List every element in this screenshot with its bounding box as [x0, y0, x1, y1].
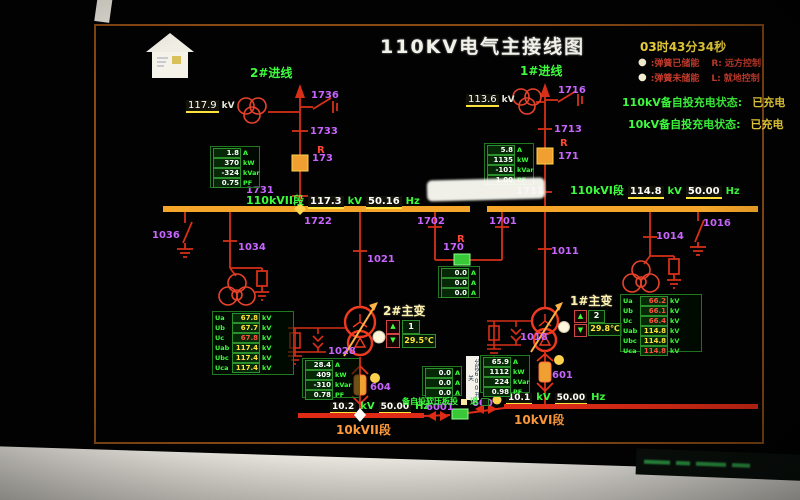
meas-value: 65.9 [483, 357, 511, 367]
meas-unit: kV [262, 324, 271, 332]
meas-label: Ua [215, 314, 230, 322]
charge-value: 已充电 [752, 94, 785, 110]
601-indicator-lamp [554, 355, 564, 365]
bus-name: 110kVI段 [570, 182, 624, 198]
meas-value: 370 [213, 158, 241, 168]
unit: kV [536, 392, 550, 403]
meas-value: 117.4 [232, 363, 260, 373]
meas-unit: A [335, 361, 340, 369]
line1-remote-flag: R [560, 138, 568, 149]
meas-unit: A [471, 289, 476, 297]
tag-1736: 1736 [311, 90, 339, 101]
soft-strap-row: 备自投软压板投 退 [402, 396, 489, 407]
bus-kv: 114.8 [628, 186, 664, 199]
unit: kV [348, 196, 362, 207]
meas-unit: kV [670, 347, 679, 355]
tag-1036: 1036 [152, 230, 180, 241]
clock: 03时43分34秒 [640, 38, 726, 55]
meas-label: Uab [215, 344, 230, 352]
camera-glare [427, 177, 546, 201]
t2-tap-lower-button[interactable]: ▼ [386, 334, 400, 348]
tag-1702: 1702 [417, 216, 445, 227]
line1-voltage: 113.6 kV [466, 94, 515, 107]
t2-tap-position[interactable]: 1 [402, 320, 420, 334]
meas-row: 0.0A [441, 288, 477, 298]
meas-unit: kW [513, 368, 525, 376]
meas-unit: kW [243, 159, 255, 167]
meas-value: 114.8 [640, 326, 668, 336]
t2-spring-indicator-lamp [373, 331, 385, 343]
unit: ℃ [424, 336, 434, 345]
meas-unit: kV [262, 344, 271, 352]
charge-label: 10kV备自投充电状态: [628, 116, 741, 132]
meas-label: Uab [623, 327, 638, 335]
bus-freq: 50.00 [686, 186, 722, 199]
bus-freq: 50.00 [555, 393, 587, 404]
meas-value: 0.0 [441, 278, 469, 288]
line2-pt-icon [238, 98, 266, 123]
bus-kv: 10.2 [330, 402, 356, 413]
meas-unit: kV [670, 307, 679, 315]
meas-value: 5.8 [487, 145, 515, 155]
meas-row: 0.78PF [305, 390, 357, 400]
unit: kV [360, 401, 374, 412]
line2-remote-flag: R [317, 145, 325, 156]
meas-unit: A [455, 379, 460, 387]
meas-unit: kVar [335, 381, 352, 389]
t1-lv-meas-box: 65.9A 1112kW 224kVar 0.98PF [480, 355, 530, 393]
meas-row: -310kVar [305, 380, 357, 390]
meas-label: Ubc [215, 354, 230, 362]
t1-oil-temp: 29.8℃ [588, 323, 622, 336]
soft-strap-off-label: 退 [470, 396, 478, 407]
meas-unit: kVar [243, 169, 260, 177]
meas-unit: kV [670, 317, 679, 325]
page-title: 110KV电气主接线图 [380, 32, 585, 59]
meas-row: -101kVar [487, 165, 531, 175]
line1-voltage-value: 113.6 [466, 94, 499, 107]
meas-row: Uca114.8kV [623, 346, 699, 356]
meas-unit: kW [335, 371, 347, 379]
meas-row: 0.0A [425, 368, 459, 378]
tag-1014: 1014 [656, 231, 684, 242]
breaker-171-icon[interactable] [537, 148, 553, 164]
meas-label: Ub [623, 307, 638, 315]
t1-tap-raise-button[interactable]: ▲ [574, 310, 587, 323]
meas-unit: kV [670, 327, 679, 335]
scada-screen: 110KV电气主接线图 03时43分34秒 ● :弹簧已储能 R: 远方控制 ●… [0, 0, 800, 500]
meas-value: 0.0 [441, 268, 469, 278]
meas-row: Ubc114.8kV [623, 336, 699, 346]
line2-voltage: 117.9 kV [186, 100, 235, 113]
charge-status-10kv: 10kV备自投充电状态: 已充电 [628, 116, 784, 132]
unit: Hz [406, 196, 420, 207]
meas-row: 1.8A [213, 148, 257, 158]
bus2-pt-icon [219, 274, 255, 305]
bus1-pt-icon [623, 261, 659, 292]
breaker-170-icon[interactable] [454, 254, 470, 265]
charge-status-110kv: 110kV备自投充电状态: 已充电 [622, 94, 785, 110]
meas-value: 1135 [487, 155, 515, 165]
t2-temp-value: 29.5 [404, 336, 424, 345]
meas-unit: kV [670, 297, 679, 305]
breaker-600-icon[interactable] [452, 409, 468, 419]
charge-value: 已充电 [751, 116, 784, 132]
bus1-pt-meas-box: Ua66.2kV Ub66.1kV Uc66.4kV Uab114.8kV Ub… [620, 294, 702, 352]
line2-arrow-icon [295, 84, 305, 98]
unit: Hz [591, 392, 605, 403]
meas-value: 0.75 [213, 178, 241, 188]
meas-unit: kV [262, 354, 271, 362]
meas-row: Uc66.4kV [623, 316, 699, 326]
meas-row: Uc67.8kV [215, 333, 291, 343]
tag-601: 601 [552, 370, 573, 381]
meas-row: Ub66.1kV [623, 306, 699, 316]
meas-value: 67.7 [232, 323, 260, 333]
meas-value: 117.4 [232, 343, 260, 353]
meas-unit: kV [670, 337, 679, 345]
meas-value: 117.4 [232, 353, 260, 363]
meas-value: 66.1 [640, 306, 668, 316]
meas-row: 0.0A [441, 278, 477, 288]
meas-unit: A [513, 358, 518, 366]
meas-value: 1112 [483, 367, 511, 377]
meas-row: 0.75PF [213, 178, 257, 188]
meas-row: Ua67.8kV [215, 313, 291, 323]
tie110-remote-flag: R [457, 234, 465, 245]
line1-name: 1#进线 [520, 62, 562, 79]
tag-1034: 1034 [238, 242, 266, 253]
soft-strap-on-checkbox[interactable] [461, 399, 467, 405]
meas-value: 1.8 [213, 148, 241, 158]
meas-unit: PF [335, 391, 344, 399]
meas-label: Uca [215, 364, 230, 372]
meas-value: 66.2 [640, 296, 668, 306]
tag-1701: 1701 [489, 216, 517, 227]
tag-604: 604 [370, 382, 391, 393]
meas-unit: A [471, 279, 476, 287]
meas-row: Uab114.8kV [623, 326, 699, 336]
meas-row: 224kVar [483, 377, 527, 387]
unit: kV [502, 95, 515, 105]
meas-label: Uc [215, 334, 230, 342]
legend-remote: R: 远方控制 [711, 56, 761, 69]
meas-label: Uc [623, 317, 638, 325]
meas-value: -310 [305, 380, 333, 390]
tag-1021: 1021 [367, 254, 395, 265]
meas-row: -324kVar [213, 168, 257, 178]
meas-row: 1135kW [487, 155, 531, 165]
tag-1018: 1018 [520, 332, 548, 343]
home-icon[interactable] [146, 33, 194, 78]
t2-tap-raise-button[interactable]: ▲ [386, 320, 400, 334]
t1-temp-value: 29.8 [590, 324, 610, 333]
t2-oil-temp: 29.5℃ [402, 334, 436, 348]
meas-unit: kV [262, 364, 271, 372]
busbar-10kv-i[interactable] [504, 404, 758, 409]
meas-value: 0.0 [425, 368, 453, 378]
meas-unit: kV [262, 314, 271, 322]
tag-1733: 1733 [310, 126, 338, 137]
meas-unit: A [455, 369, 460, 377]
meas-unit: kVar [517, 166, 534, 174]
tag-171: 171 [558, 151, 579, 162]
soft-strap-off-checkbox[interactable] [481, 398, 489, 406]
meas-row: 0.0A [425, 378, 459, 388]
bus-10kv-i-name: 10kVI段 [514, 411, 564, 428]
line2-voltage-value: 117.9 [186, 100, 219, 113]
meas-value: 224 [483, 377, 511, 387]
meas-row: Ubc117.4kV [215, 353, 291, 363]
unit: Hz [726, 186, 740, 197]
bus-10kv-ii-name: 10kVII段 [336, 421, 391, 438]
meas-row: Uab117.4kV [215, 343, 291, 353]
tie10-meas-box: 0.0A 0.0A 0.0A [422, 366, 462, 396]
unit: kV [668, 186, 682, 197]
meas-value: -101 [487, 165, 515, 175]
meas-value: 0.78 [305, 390, 333, 400]
t2-lv-meas-box: 28.4A 409kW -310kVar 0.78PF [302, 358, 360, 398]
meas-row: Ua66.2kV [623, 296, 699, 306]
meas-label: Ua [623, 297, 638, 305]
meas-row: Uca117.4kV [215, 363, 291, 373]
pt-branch-1014 [643, 212, 681, 288]
meas-label: Ubc [623, 337, 638, 345]
spring-uncharged-dot-icon: ● [638, 72, 647, 83]
legend-label: :弹簧已储能 [651, 56, 700, 69]
bus2-pt-meas-box: Ua67.8kV Ub67.7kV Uc67.8kV Uab117.4kV Ub… [212, 311, 294, 375]
meas-row: 28.4A [305, 360, 357, 370]
meas-unit: PF [513, 388, 522, 396]
t2-name: 2#主变 [383, 302, 425, 319]
unit: kV [222, 101, 235, 111]
meas-row: 0.98PF [483, 387, 527, 397]
t1-tap-lower-button[interactable]: ▼ [574, 324, 587, 337]
tag-1716: 1716 [558, 85, 586, 96]
bus-kv: 117.3 [308, 196, 344, 209]
meas-label: Ub [215, 324, 230, 332]
meas-value: 114.8 [640, 336, 668, 346]
meas-label: Uca [623, 347, 638, 355]
tie10-vertical-label: 分段600开关 [466, 356, 479, 400]
tag-1028: 1028 [328, 346, 356, 357]
meas-value: 114.8 [640, 346, 668, 356]
tag-1713: 1713 [554, 124, 582, 135]
legend-label: :弹簧未储能 [651, 71, 700, 84]
meas-row: 5.8A [487, 145, 531, 155]
meas-row: 0.0A [441, 268, 477, 278]
line2-meas-box: 1.8A 370kW -324kVar 0.75PF [210, 146, 260, 188]
meas-row: 65.9A [483, 357, 527, 367]
spring-charged-dot-icon: ● [638, 57, 647, 68]
busbar-110kv-i[interactable] [487, 206, 758, 212]
meas-unit: A [517, 146, 522, 154]
tag-1722: 1722 [304, 216, 332, 227]
t2-hv-line [353, 212, 367, 307]
tie110-meas-box: 0.0A 0.0A 0.0A [438, 266, 480, 298]
bus-freq: 50.16 [366, 196, 402, 209]
legend-row-charged: ● :弹簧已储能 R: 远方控制 [638, 56, 761, 69]
tag-1011: 1011 [551, 246, 579, 257]
meas-value: 66.4 [640, 316, 668, 326]
meas-value: 28.4 [305, 360, 333, 370]
meas-unit: kVar [513, 378, 530, 386]
meas-value: 409 [305, 370, 333, 380]
meas-value: 0.0 [441, 288, 469, 298]
meas-row: 409kW [305, 370, 357, 380]
meas-unit: A [471, 269, 476, 277]
breaker-173-icon[interactable] [292, 155, 308, 171]
charge-label: 110kV备自投充电状态: [622, 94, 742, 110]
unit: ℃ [610, 324, 620, 333]
line2-name: 2#进线 [250, 64, 292, 81]
meas-unit: kW [517, 156, 529, 164]
meas-value: -324 [213, 168, 241, 178]
legend-row-uncharged: ● :弹簧未储能 L: 就地控制 [638, 71, 760, 84]
bus-110kv-i-label: 110kVI段 114.8 kV 50.00 Hz [570, 182, 740, 199]
soft-strap-label: 备自投软压板投 [402, 396, 458, 407]
meas-unit: PF [243, 179, 252, 187]
t1-tap-position[interactable]: 2 [588, 310, 605, 323]
meas-unit: A [243, 149, 248, 157]
meas-value: 67.8 [232, 313, 260, 323]
meas-row: Ub67.7kV [215, 323, 291, 333]
legend-local: L: 就地控制 [711, 71, 759, 84]
t1-spring-indicator-lamp [559, 322, 570, 333]
meas-row: 1112kW [483, 367, 527, 377]
meas-value: 67.8 [232, 333, 260, 343]
t1-name: 1#主变 [570, 292, 612, 309]
tag-1016: 1016 [703, 218, 731, 229]
line2-conductor [268, 88, 337, 206]
meas-row: 370kW [213, 158, 257, 168]
meas-value: 0.0 [425, 378, 453, 388]
t1-hv-line [538, 212, 552, 308]
meas-unit: kV [262, 334, 271, 342]
